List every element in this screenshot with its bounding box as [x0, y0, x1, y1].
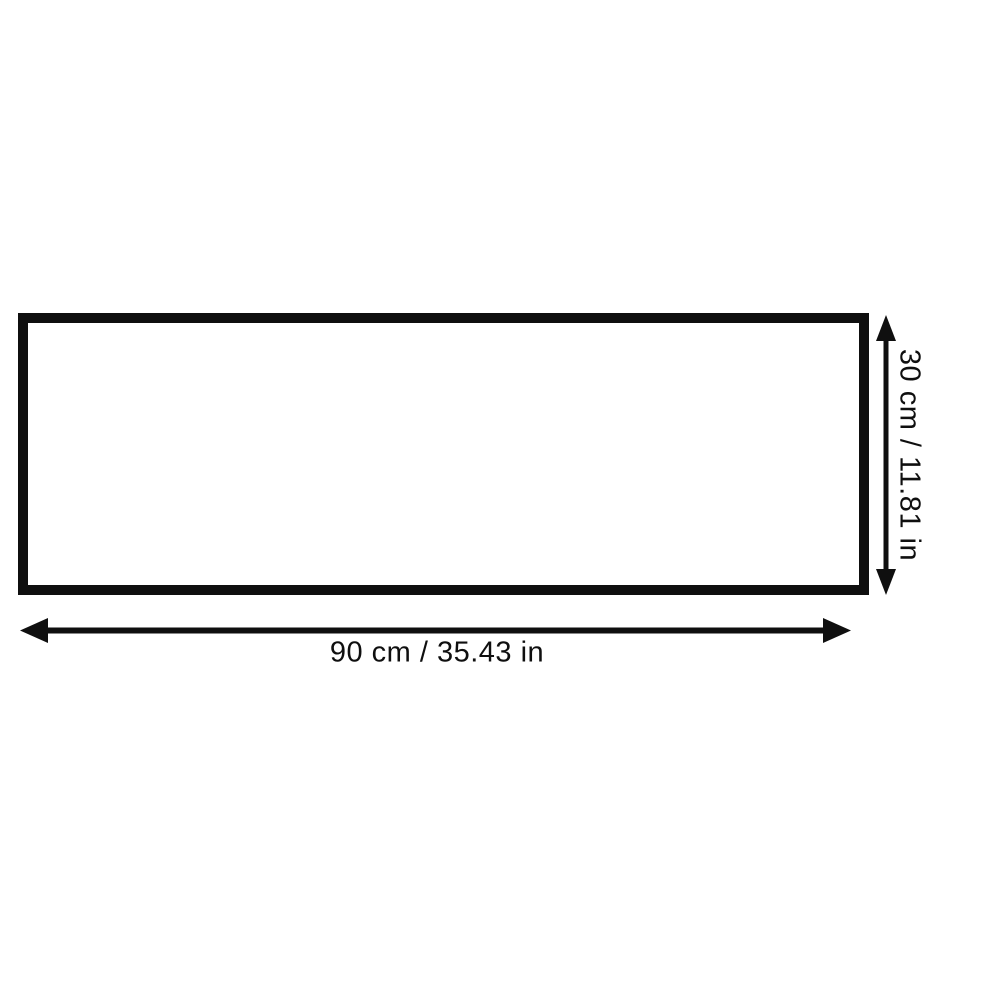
- arrow-up-head-icon: [876, 315, 896, 341]
- arrow-right-head-icon: [823, 618, 851, 643]
- rectangle-outline: [18, 313, 869, 595]
- height-dimension-label: 30 cm / 11.81 in: [895, 349, 924, 561]
- arrow-left-head-icon: [20, 618, 48, 643]
- arrow-down-head-icon: [876, 569, 896, 595]
- dimension-diagram: 30 cm / 11.81 in 90 cm / 35.43 in: [0, 0, 1000, 1000]
- width-dimension-label: 90 cm / 35.43 in: [330, 639, 544, 668]
